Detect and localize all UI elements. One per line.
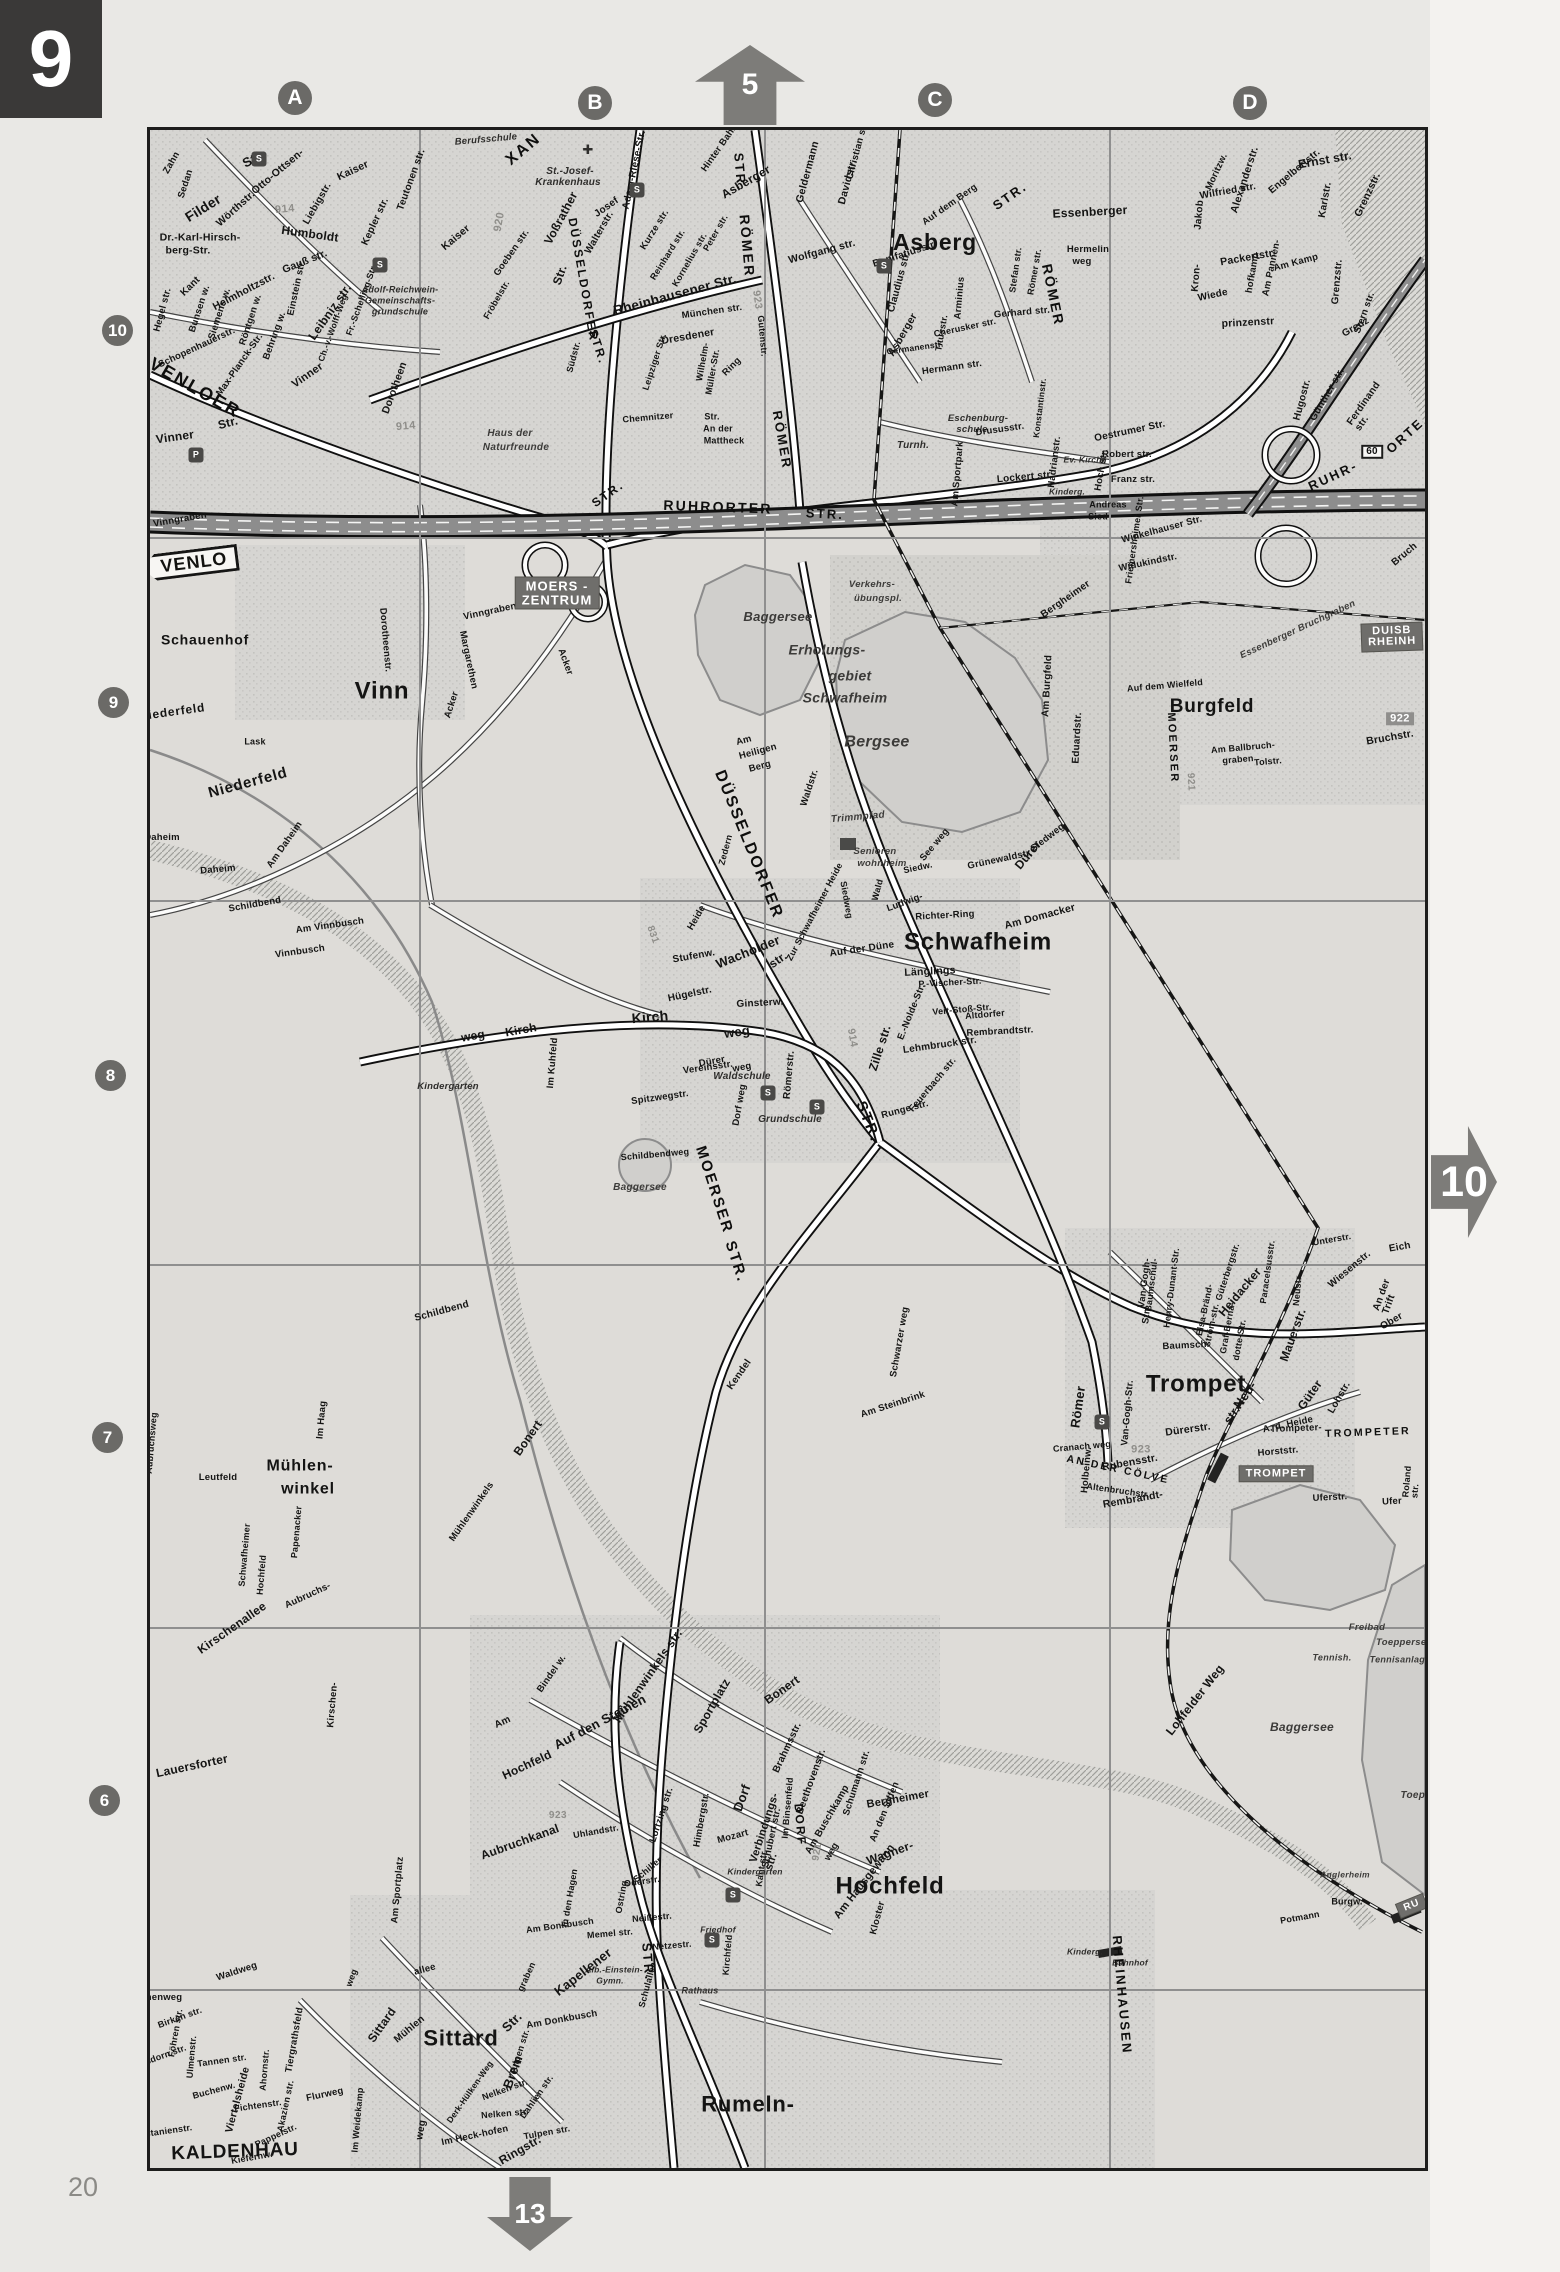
street-label: Siedweg	[838, 881, 854, 920]
street-label: Daheim	[200, 864, 236, 877]
street-label: Zille str.	[867, 1024, 893, 1073]
place-label: Burgfeld	[1170, 697, 1255, 717]
street-label: Horststr.	[1257, 1445, 1299, 1458]
street-label: Am Sportplatz	[390, 1856, 406, 1924]
street-label: weg	[823, 1841, 841, 1862]
street-label: allee	[413, 1962, 437, 1977]
street-label: Waldweg	[215, 1961, 258, 1983]
parking-icon: P	[189, 448, 204, 463]
street-label: Bruchstr.	[1365, 728, 1414, 747]
street-label: Rembrandtstr.	[966, 1025, 1033, 1038]
grid-row-10: 10	[102, 315, 133, 346]
nature-label: Essenberger Bruchgraben	[1239, 599, 1358, 661]
street-label: Himbergstr.	[692, 1792, 711, 1848]
street-label: Am Daheim	[265, 820, 304, 870]
nature-label: Baggersee	[743, 610, 812, 624]
poi-label: St.-Josef-	[546, 167, 594, 177]
road-label: RÖMER	[737, 214, 757, 278]
street-label: Kepler str.	[360, 197, 391, 248]
school-icon: S	[810, 1100, 825, 1115]
street-label: Spitzwegstr.	[631, 1089, 690, 1107]
place-label: Niederfeld	[150, 701, 206, 723]
street-label: Ober	[1379, 1311, 1405, 1332]
street-label: Wald	[871, 878, 886, 902]
nature-label: Trimmpfad	[831, 810, 886, 825]
road-label: STR.	[590, 479, 627, 510]
poi-label: Gymn.	[596, 1977, 623, 1986]
street-label: Burgw.	[1331, 1897, 1362, 1906]
street-label: Ringstr.	[497, 2133, 543, 2167]
street-label: Im Haag	[315, 1400, 328, 1439]
adjacent-page-arrow-5: 5	[695, 45, 805, 125]
street-label: Tiergrathsfeld	[284, 2007, 305, 2074]
road-label: RÖMER	[770, 410, 794, 471]
street-label: Daheim	[150, 833, 180, 843]
street-label: Neißestr.	[632, 1912, 672, 1925]
street-label: graben	[516, 1961, 538, 1993]
street-label: Weißdorn str.	[150, 2043, 188, 2072]
street-label: E.-Nolde-Str.	[896, 983, 927, 1042]
poi-label: Rathaus	[682, 1986, 719, 1995]
street-label: Im Heck-hofen	[441, 2124, 510, 2148]
page-right-margin	[1430, 0, 1560, 2272]
poi-label: Berufsschule	[454, 132, 517, 147]
route-badge: 922	[1386, 712, 1414, 725]
route-number: 831	[644, 925, 660, 946]
street-label: Ernst str.	[1297, 149, 1352, 171]
place-label: Mühlen-	[267, 1459, 334, 1476]
street-label: An den Siffen	[868, 1781, 901, 1844]
school-icon: S	[373, 258, 388, 273]
street-label: Behring w.	[262, 311, 288, 362]
school-icon: S	[1095, 1415, 1110, 1430]
street-label: Flurweg	[305, 2086, 344, 2104]
street-label: Hermelin	[1067, 245, 1109, 255]
road-label: STR.	[990, 179, 1029, 212]
street-label: Hegel str.	[152, 287, 173, 333]
place-label: Trompet	[1146, 1373, 1246, 1398]
street-label: Lockert str.	[996, 470, 1053, 485]
street-label: Kendel	[726, 1358, 754, 1392]
map-sign: MOERS - ZENTRUM	[516, 577, 599, 608]
nature-label: Baggersee	[1270, 1721, 1334, 1733]
street-label: Ginsterw.	[736, 998, 783, 1011]
street-label: Viertelsheide	[224, 2066, 252, 2134]
street-label: Bindel w.	[536, 1653, 569, 1694]
road-label: STR.	[722, 1239, 750, 1285]
street-label: Hadrianstr.	[1047, 436, 1063, 489]
street-label: Lauersforter	[155, 1752, 229, 1779]
street-label: Schildbendweg	[620, 1147, 689, 1162]
grid-row-6: 6	[89, 1785, 120, 1816]
street-label: Henry-Dunant-Str.	[1162, 1248, 1181, 1329]
street-label: Uhlandstr.	[573, 1823, 620, 1840]
road-label: MOERSER	[692, 1144, 735, 1236]
route-number: 914	[845, 1028, 859, 1049]
street-label: Römer	[1068, 1385, 1087, 1429]
street-label: Goeben str.	[492, 228, 531, 278]
street-label: Tolstr.	[1254, 756, 1282, 768]
street-label: Eduardstr.	[1071, 712, 1084, 764]
street-label: Acker	[556, 647, 575, 676]
road-label: STR.	[732, 152, 749, 191]
nature-label: Naturfreunde	[483, 443, 549, 453]
street-label: Jakob	[1194, 200, 1207, 231]
street-label: An der	[703, 424, 733, 433]
poi-label: Turnh.	[897, 441, 929, 451]
place-label: winkel	[281, 1482, 335, 1499]
page-number: 20	[68, 2172, 98, 2203]
street-label: Chemnitzer	[622, 411, 674, 425]
direction-sign: VENLO	[150, 544, 240, 582]
street-label: Schwarzer weg	[889, 1306, 911, 1378]
street-label: Am Burgfeld	[1041, 655, 1055, 718]
street-label: Lask	[244, 737, 265, 746]
street-label: Lortzing str.	[649, 1786, 676, 1843]
street-label: Siedw.	[903, 860, 934, 875]
street-label: Dürerstr.	[1165, 1421, 1212, 1438]
street-label: Vinngraben	[153, 510, 208, 529]
street-label: Schwafheimer	[238, 1523, 253, 1587]
grid-column-B: B	[578, 86, 612, 120]
street-label: weg	[1072, 257, 1091, 267]
street-label: Fröbelstr.	[482, 279, 512, 321]
street-label: Am Vinnbusch	[295, 916, 364, 935]
road-label: RUHR-	[1306, 459, 1360, 494]
street-label: Kirschen-	[326, 1682, 340, 1728]
street-label: Memel str.	[587, 1927, 634, 1940]
street-label: Zypressenw.	[150, 2000, 152, 2049]
street-label: Schildbend	[228, 896, 282, 915]
street-label: Str.	[217, 414, 240, 431]
school-icon: S	[630, 183, 645, 198]
nature-label: wohnheim	[857, 859, 906, 869]
street-label: Sedan	[177, 168, 196, 199]
place-label: Vinn	[355, 680, 410, 705]
street-label: Papenacker	[290, 1505, 304, 1558]
road-label: MOERSER	[1164, 712, 1179, 784]
street-label: Eich	[1388, 1241, 1411, 1255]
grid-row-9: 9	[98, 687, 129, 718]
street-label: Günther str.	[1309, 367, 1348, 423]
street-label: Roland str.	[1401, 1465, 1422, 1498]
street-label: Mozart	[716, 1828, 749, 1846]
grid-column-C: C	[918, 83, 952, 117]
street-label: Römerstr.	[783, 1050, 798, 1099]
street-label: Mauerstr.	[1278, 1307, 1309, 1363]
street-label: Stufenw.	[672, 948, 716, 966]
nature-label: Baggersee	[613, 1183, 667, 1193]
route-number: 920	[493, 211, 508, 233]
route-number: 921	[1184, 773, 1195, 792]
street-label: Mattheck	[704, 436, 745, 445]
street-label: An der Trift	[1372, 1274, 1404, 1316]
road-label: STR.	[640, 1942, 657, 1981]
street-label: Gutenstr.	[756, 315, 769, 357]
street-label: Wolfgang str.	[787, 238, 856, 266]
street-label: Bruch	[1390, 541, 1420, 568]
street-label: Margarethen	[457, 630, 479, 690]
map-sign: TROMPET	[1240, 1466, 1313, 1481]
street-label: Leipziger Str.	[641, 332, 668, 391]
street-label: Waldstr.	[799, 768, 820, 807]
street-label: Zedern	[717, 834, 734, 867]
street-label: Am Steinbrink	[860, 1390, 927, 1420]
street-label: Acker	[443, 690, 461, 719]
street-label: Hochfeld	[256, 1555, 269, 1596]
street-label: Wiesenstr.	[1327, 1249, 1373, 1290]
street-label: Essenberger	[1052, 204, 1127, 220]
street-label: weg	[415, 2119, 429, 2141]
street-label: Peter str.	[702, 213, 730, 253]
poi-label: Kinderg.	[1067, 1948, 1103, 1957]
street-label: Andreas	[1089, 500, 1126, 509]
street-label: Kirchfeld	[722, 1934, 735, 1975]
street-label: Stefan str.	[1008, 247, 1024, 294]
map-sign: DUISB RHEINH	[1361, 623, 1422, 652]
street-label: Hermann str.	[921, 359, 982, 377]
street-label: Berg	[748, 759, 772, 774]
place-label: Schauenhof	[161, 633, 249, 648]
hospital-icon: ✚	[582, 143, 593, 157]
street-label: Liebigstr.	[302, 181, 334, 226]
street-label: Auf dem Berg	[921, 182, 980, 227]
nature-label: Haus der	[487, 429, 532, 439]
nature-label: Tennish.	[1312, 1653, 1351, 1662]
street-label: Hochfeld	[500, 1748, 553, 1782]
street-label: Wörthstr.	[215, 189, 258, 229]
nature-label: übungspl.	[854, 594, 902, 604]
street-label: Kaiser	[336, 159, 371, 183]
poi-label: Waldschule	[713, 1072, 770, 1082]
street-label: Karlstr.	[1318, 181, 1334, 218]
place-label: Rumeln-	[701, 2094, 795, 2117]
street-label: Ulmenstr.	[185, 2035, 198, 2078]
street-label: Hügelstr.	[667, 985, 713, 1004]
street-label: Mühlen	[393, 2014, 427, 2045]
street-label: Bonert	[762, 1673, 802, 1706]
street-label: Kastanienstr.	[150, 2123, 193, 2140]
street-label: weg	[345, 1968, 360, 1988]
street-label: 1 Platanenweg	[150, 1993, 182, 2003]
route-number: 921	[811, 1842, 824, 1862]
school-icon: S	[761, 1086, 776, 1101]
road-label: RÖMER	[1039, 263, 1066, 328]
road-label: STR.	[853, 1099, 884, 1145]
street-label: Ahornstr.	[259, 2049, 272, 2091]
street-label: Am	[493, 1715, 512, 1731]
street-label: Kaiser	[440, 223, 473, 253]
street-label: Mühlenwinkels	[448, 1480, 496, 1543]
street-label: Grenzstr.	[1353, 171, 1383, 219]
street-label: berg-Str.	[166, 246, 211, 257]
street-label: Lohstr.	[1327, 1380, 1353, 1415]
street-label: Am	[735, 734, 753, 748]
grid-column-A: A	[278, 81, 312, 115]
street-label: Aubruchkanal	[479, 1822, 561, 1862]
street-label: Dorotheen	[381, 361, 410, 416]
school-icon: S	[252, 152, 267, 167]
street-label: Kron-	[1191, 264, 1204, 292]
street-label: Bergheimer	[1039, 579, 1092, 621]
nature-label: Freibad	[1349, 1623, 1385, 1633]
street-label: Am Donkbusch	[526, 2009, 599, 2031]
street-label: Kirch	[631, 1008, 669, 1026]
poi-label: Adolf-Reichwein-	[362, 285, 439, 294]
street-label: Kirch	[504, 1021, 537, 1039]
place-label: Sittard	[423, 2028, 498, 2051]
route-number: 923	[549, 1811, 567, 1821]
street-label: Aubruchsweg	[150, 1412, 159, 1474]
street-label: Franz str.	[1111, 475, 1155, 485]
nature-label: Tennisanlage	[1370, 1655, 1425, 1664]
street-label: P.-Vischer-Str.	[918, 977, 982, 990]
street-label: Trompeter-	[1270, 1423, 1322, 1435]
street-label: Am Sportpark	[950, 441, 966, 507]
street-label: Buchenw.	[192, 2081, 237, 2101]
street-label: graben	[1222, 754, 1254, 766]
street-label: Christian str.	[845, 130, 870, 181]
street-label: Alexanderstr.	[1229, 145, 1261, 214]
route-number: 914	[275, 203, 296, 216]
street-label: Sied	[1088, 512, 1108, 521]
street-label: Vinner	[155, 428, 195, 446]
street-label: Kloster	[869, 1900, 887, 1936]
poi-label: Krankenhaus	[535, 178, 601, 188]
street-label: weg	[460, 1028, 486, 1044]
street-label: Dr.-Karl-Hirsch-	[160, 233, 241, 244]
street-label: Gerhard str.	[994, 306, 1051, 321]
school-icon: S	[877, 259, 892, 274]
street-label: Bonert	[511, 1418, 544, 1458]
poi-label: grundschule	[372, 307, 428, 316]
street-label: Vinnbusch	[274, 944, 325, 961]
nature-label: Bergsee	[844, 735, 909, 752]
road-label: TROMPETER	[1325, 1426, 1411, 1440]
street-label: dotte-Str.	[1232, 1319, 1248, 1361]
street-label: Potmann	[1280, 1910, 1321, 1926]
atlas-page-scan: { "page": {"atlas_tab": "9", "page_numbe…	[0, 0, 1560, 2272]
street-label: Dorotheenstr.	[377, 608, 392, 673]
route-number: 923	[750, 290, 763, 310]
street-label: Unterstr.	[1312, 1232, 1352, 1248]
street-label: Geldermann	[795, 140, 822, 204]
street-label: Südstr.	[565, 340, 582, 373]
atlas-tab-number: 9	[29, 13, 74, 105]
street-label: Van-Gogh-Str.	[1120, 1380, 1136, 1447]
street-label: Am Domacker	[1003, 902, 1076, 931]
street-label: Sportplatz	[691, 1677, 732, 1736]
nature-label: gebiet	[828, 669, 871, 684]
nature-label: Erholungs-	[789, 643, 866, 658]
street-label: Mühlenwinkels str.	[611, 1627, 684, 1725]
nature-label: Anglerheim	[1320, 1871, 1370, 1880]
school-icon: S	[726, 1888, 741, 1903]
street-label: Aubruchs-	[284, 1581, 333, 1611]
grid-row-8: 8	[95, 1060, 126, 1091]
street-label: Teutonen str.	[396, 148, 428, 212]
street-label: Vinngraben	[463, 602, 518, 623]
road-label: ORTE	[1384, 416, 1425, 456]
street-label: München str.	[681, 303, 743, 321]
route-number: 914	[396, 420, 417, 433]
poi-label: Grundschule	[758, 1115, 822, 1125]
street-label: Konstantinstr.	[1032, 378, 1048, 439]
street-label: Am Bonkbusch	[525, 1917, 594, 1936]
street-label: Neustr.	[1292, 1274, 1304, 1307]
school-icon: S	[705, 1933, 720, 1948]
street-label: Uferstr.	[1312, 1492, 1347, 1504]
street-label: weg	[723, 1024, 751, 1041]
map-sign: RU	[1396, 1894, 1425, 1918]
street-label: Auf der Düne	[829, 940, 895, 959]
map-labels: ZahnSedanFilderStr.Otto-Ottsen-KaiserWör…	[150, 130, 1425, 2168]
street-label: Lohfelder Weg	[1164, 1662, 1227, 1737]
nature-label: Schwafheim	[803, 691, 888, 706]
poi-label: Kinderg.	[1049, 488, 1085, 497]
street-label: Humboldt	[281, 224, 340, 244]
place-label: Schwafheim	[904, 931, 1052, 956]
street-label: Str.	[551, 263, 570, 286]
street-label: Str.	[704, 412, 719, 421]
street-label: Güter	[1295, 1378, 1324, 1412]
nature-label: Verkehrs-	[849, 580, 895, 590]
poi-label: Gemeinschafts-	[365, 296, 435, 305]
grid-column-D: D	[1233, 86, 1267, 120]
street-label: Wiede	[1197, 288, 1229, 304]
street-label: prinzenstr	[1221, 316, 1274, 330]
street-label: Dorf weg	[731, 1083, 748, 1126]
road-label: STR.	[586, 328, 609, 366]
street-label: Altdorfer	[965, 1009, 1005, 1022]
adjacent-page-arrow-13: 13	[487, 2177, 573, 2251]
road-label: RUHRORTER	[663, 498, 773, 516]
grid-row-7: 7	[92, 1422, 123, 1453]
nature-label: Toeppersee	[1376, 1638, 1425, 1648]
street-label: Ostring	[614, 1880, 629, 1915]
nature-label: Toepp	[1400, 1791, 1425, 1801]
street-label: Zahn	[162, 150, 182, 175]
road-label: DORF	[792, 1803, 808, 1847]
place-label: KALDENHAU	[171, 2140, 299, 2164]
street-label: Dorf	[731, 1783, 753, 1813]
road-label: STR.	[805, 506, 844, 522]
street-label: Netzestr.	[652, 1940, 692, 1953]
street-label: Im Weidekamp	[350, 2087, 365, 2153]
nature-label: Senioren	[853, 847, 896, 857]
street-label: Ring	[721, 356, 743, 378]
street-label: Richter-Ring	[915, 910, 975, 923]
street-label: Paracelsusstr.	[1259, 1240, 1277, 1305]
page-corner-tab: 9	[0, 0, 102, 118]
street-label: Im Kuhfeld	[546, 1037, 560, 1089]
street-label: Ufer	[1382, 1497, 1402, 1508]
street-label: Schildbend	[414, 1300, 471, 1325]
street-label: Leutfeld	[199, 1473, 238, 1483]
street-label: Runge str.	[880, 1099, 929, 1121]
street-label: Vinner	[290, 361, 325, 391]
street-label: Grenzstr.	[1331, 259, 1345, 305]
map-canvas: ZahnSedanFilderStr.Otto-Ottsen-KaiserWör…	[150, 130, 1425, 2168]
street-label: Heide	[686, 904, 708, 932]
street-label: Arminius	[953, 276, 967, 319]
road-label: RHEINHAUSEN	[1110, 1935, 1134, 2055]
street-label: Kirschenallee	[195, 1600, 268, 1656]
street-label: Oestrumer Str.	[1094, 419, 1167, 444]
street-label: Adam-Riese-Str.	[622, 130, 649, 210]
poi-label: Kindergarten	[417, 1082, 479, 1092]
street-label: See weg	[919, 827, 952, 864]
